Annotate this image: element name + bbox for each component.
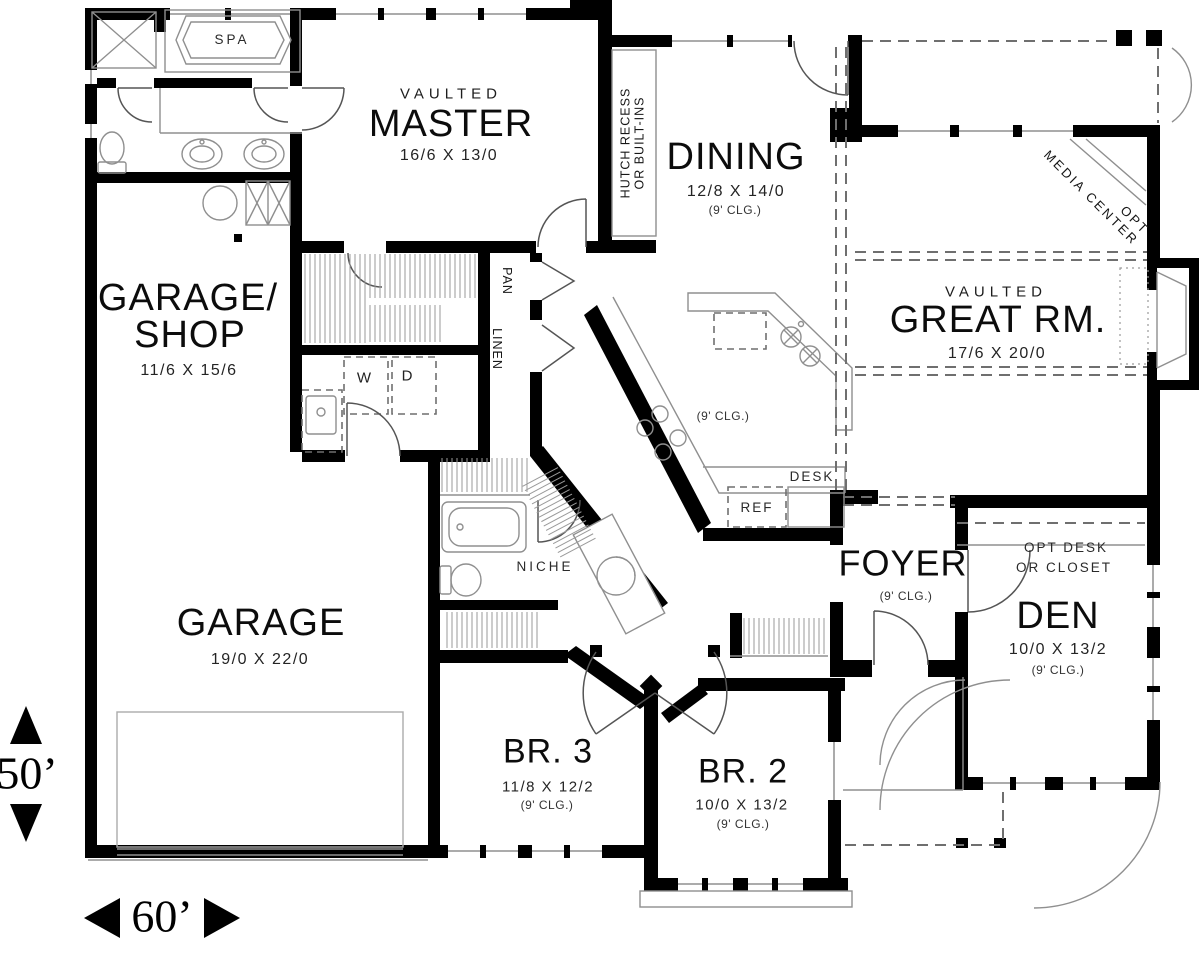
dining-door bbox=[794, 41, 848, 95]
label-opt-desk-2: OR CLOSET bbox=[1016, 560, 1112, 576]
floorplan-linework bbox=[0, 0, 1200, 966]
label-washer: W bbox=[357, 369, 371, 386]
vanity-sinks bbox=[160, 88, 302, 169]
label-spa: SPA bbox=[214, 32, 249, 48]
walkin-closet-hatch bbox=[305, 254, 475, 298]
label-dining-name: DINING bbox=[667, 136, 806, 180]
label-master-dims: 16/6 X 13/0 bbox=[400, 147, 498, 165]
label-desk: DESK bbox=[790, 469, 835, 485]
pantry-door bbox=[542, 262, 574, 300]
label-den-dims: 10/0 X 13/2 bbox=[1009, 641, 1107, 659]
arrow-left-icon bbox=[84, 898, 120, 938]
label-great-tag: VAULTED bbox=[945, 283, 1047, 300]
linen-door bbox=[542, 325, 574, 371]
hutch-line-2: OR BUILT-INS bbox=[633, 88, 647, 199]
master-door bbox=[538, 199, 586, 247]
label-garage-shop-dims: 11/6 X 15/6 bbox=[140, 362, 237, 380]
floor-plan: SPA VAULTED MASTER 16/6 X 13/0 HUTCH REC… bbox=[0, 0, 1200, 966]
vestibule-fixtures bbox=[203, 181, 290, 225]
label-dining-ceiling: (9' CLG.) bbox=[709, 204, 762, 218]
label-garage-dims: 19/0 X 22/0 bbox=[211, 651, 309, 669]
label-linen: LINEN bbox=[490, 328, 504, 370]
label-den-ceiling: (9' CLG.) bbox=[1032, 664, 1085, 678]
arrow-down-icon bbox=[10, 804, 42, 842]
label-br3-ceiling: (9' CLG.) bbox=[521, 799, 574, 813]
toilet-master bbox=[98, 132, 126, 173]
label-hutch-recess: HUTCH RECESS OR BUILT-INS bbox=[619, 88, 648, 199]
label-great-name: GREAT RM. bbox=[890, 299, 1107, 343]
label-master-tag: VAULTED bbox=[400, 85, 502, 102]
label-br2-dims: 10/0 X 13/2 bbox=[695, 796, 788, 813]
bath-door-2 bbox=[254, 88, 288, 122]
hearth-dotted bbox=[1120, 268, 1148, 364]
label-foyer-ceiling: (9' CLG.) bbox=[880, 590, 933, 604]
label-width-dimension: 60’ bbox=[131, 891, 192, 944]
label-dryer: D bbox=[402, 367, 413, 384]
label-dining-dims: 12/8 X 14/0 bbox=[687, 183, 785, 201]
hall-bath bbox=[440, 495, 530, 596]
shower bbox=[92, 12, 156, 68]
arrow-right-icon bbox=[204, 898, 240, 938]
walkin-closet-hatch bbox=[340, 305, 440, 342]
niche-column bbox=[573, 514, 664, 634]
label-garage-shop-2: SHOP bbox=[134, 314, 246, 358]
dashed-ceiling-lines bbox=[836, 41, 1158, 845]
bath-door-1 bbox=[118, 88, 152, 122]
label-niche: NICHE bbox=[516, 559, 573, 575]
master-hall-door bbox=[302, 88, 344, 130]
label-master-name: MASTER bbox=[369, 103, 533, 147]
front-door bbox=[874, 611, 928, 665]
bath-closet-hatch bbox=[442, 458, 527, 492]
label-foyer-name: FOYER bbox=[838, 542, 967, 583]
garage-door bbox=[88, 712, 428, 860]
label-opt-desk-1: OPT DESK bbox=[1024, 540, 1108, 556]
label-br3-dims: 11/8 X 12/2 bbox=[502, 778, 594, 795]
label-den-name: DEN bbox=[1016, 595, 1099, 639]
label-depth-dimension: 50’ bbox=[0, 748, 58, 801]
label-refrigerator: REF bbox=[741, 500, 774, 516]
label-br2-ceiling: (9' CLG.) bbox=[717, 818, 770, 832]
label-great-dims: 17/6 X 20/0 bbox=[948, 345, 1046, 363]
br3-closet-hatch bbox=[447, 612, 537, 648]
label-garage-name: GARAGE bbox=[177, 602, 346, 646]
label-br2-name: BR. 2 bbox=[698, 752, 788, 791]
hutch-line-1: HUTCH RECESS bbox=[619, 88, 633, 199]
label-pantry: PAN bbox=[500, 267, 514, 295]
walkin-closet-hatch bbox=[305, 298, 365, 343]
label-kitchen-ceiling: (9' CLG.) bbox=[697, 410, 750, 424]
label-br3-name: BR. 3 bbox=[503, 732, 593, 771]
dimension-arrows bbox=[10, 706, 240, 938]
fireplace bbox=[1157, 272, 1186, 368]
laundry-sink bbox=[306, 396, 336, 434]
br2-closet-hatch bbox=[744, 618, 824, 654]
arrow-up-icon bbox=[10, 706, 42, 744]
